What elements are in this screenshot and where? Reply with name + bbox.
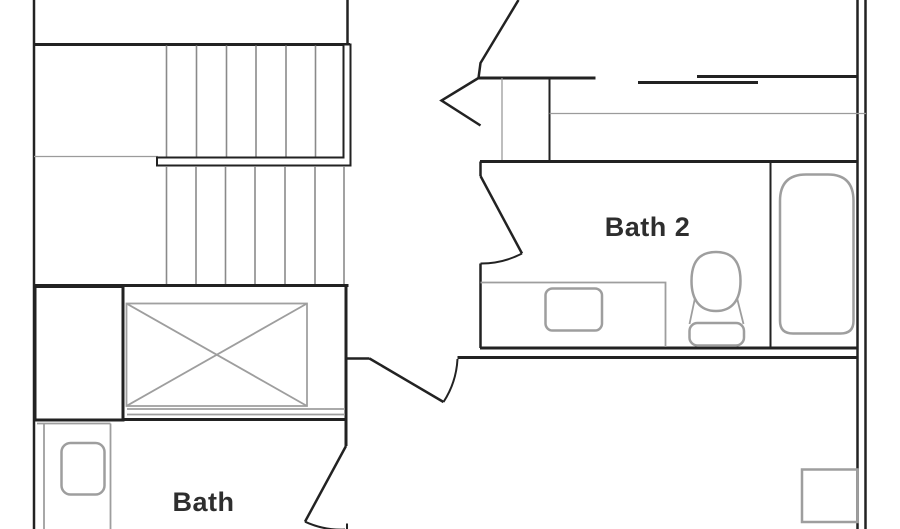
stair-stringer (157, 45, 351, 166)
bath2-door (481, 176, 523, 264)
bath2-vanity (481, 283, 666, 348)
open-to-below-x-box (33, 286, 349, 447)
hall-walls (478, 77, 866, 164)
stair-treads-lower (167, 166, 345, 284)
vanity-counter (481, 283, 666, 348)
bath-door (305, 446, 347, 529)
door-leaf (305, 446, 346, 522)
toilet-tank (690, 323, 745, 346)
vanity-sink (62, 443, 105, 495)
floor-plan: Bath 2 Bath (0, 0, 900, 529)
toilet-bowl (692, 252, 741, 311)
stair-treads-upper (167, 46, 316, 158)
lower-right-room (346, 358, 858, 523)
floor-plan-drawing: Bath 2 Bath (0, 0, 900, 529)
top-door (442, 0, 519, 126)
toilet (690, 252, 745, 346)
door-leaf (442, 78, 481, 126)
door-swing-arc (444, 359, 458, 402)
toilet-seat-line (690, 298, 696, 324)
bath-label: Bath (173, 487, 235, 517)
bath-room: Bath (37, 424, 347, 529)
vanity-sink (546, 289, 603, 331)
closet (35, 287, 123, 421)
staircase (34, 45, 351, 285)
door-leaf (479, 0, 519, 78)
bath2-room: Bath 2 (480, 162, 858, 349)
door-swing-arc (305, 522, 345, 529)
hall-door (346, 359, 458, 403)
bath-vanity (37, 424, 111, 529)
bath2-label: Bath 2 (605, 212, 691, 242)
bathtub (780, 175, 854, 334)
door-leaf (481, 176, 523, 254)
door-swing-arc (481, 254, 523, 264)
toilet-seat-line (737, 298, 744, 324)
door-leaf (370, 359, 444, 403)
exterior-walls (33, 0, 866, 529)
corner-square-fixture (802, 470, 858, 523)
